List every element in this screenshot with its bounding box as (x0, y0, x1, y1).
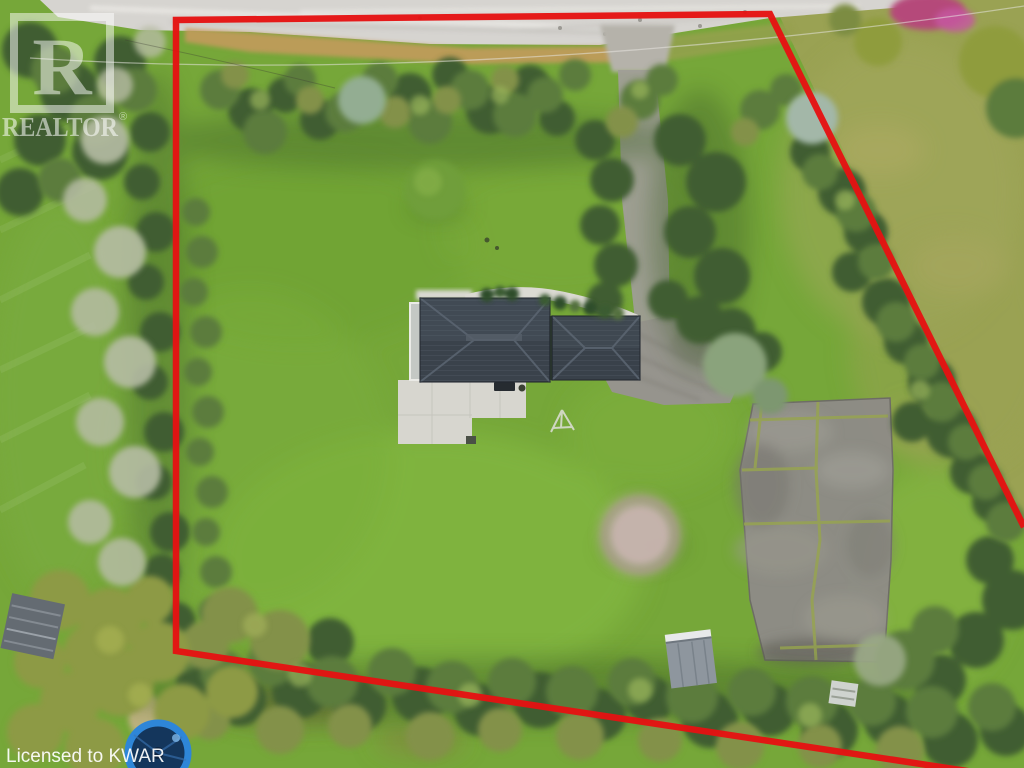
aerial-photo-canvas: R REALTOR ® Licensed to KWAR (0, 0, 1024, 768)
license-text: Licensed to KWAR (6, 746, 165, 767)
bare-shrub (600, 495, 680, 575)
garage-roof (552, 316, 640, 380)
realtor-wordmark: REALTOR (2, 112, 118, 142)
bbq-grill (494, 382, 515, 391)
registered-symbol: ® (119, 111, 127, 123)
neighbour-shed (1, 593, 65, 659)
paved-court (734, 398, 894, 666)
aerial-photo: R REALTOR ® Licensed to KWAR (0, 0, 1024, 768)
realtor-logo-letter: R (32, 21, 92, 112)
garden-shed (665, 629, 717, 688)
pallet-stack (828, 680, 858, 707)
